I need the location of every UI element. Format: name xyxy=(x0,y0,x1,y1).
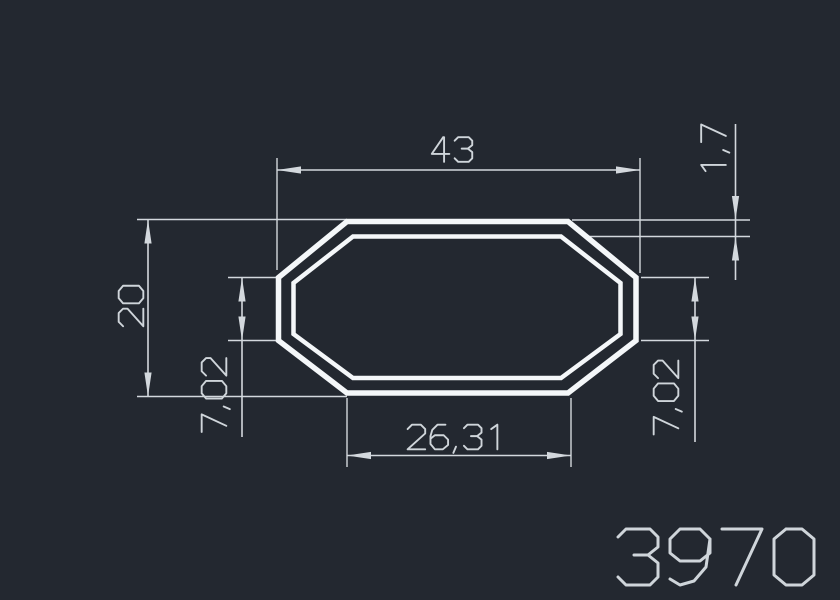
arrowhead-up xyxy=(691,278,698,302)
arrowhead-down xyxy=(238,317,245,341)
dim-bottom-width-value xyxy=(408,425,498,453)
arrowhead-left xyxy=(277,166,301,173)
arrowhead-up xyxy=(238,278,245,302)
dim-right-side-height xyxy=(641,278,709,443)
profile-outer-contour xyxy=(279,222,637,394)
dim-right-side-value xyxy=(654,361,682,435)
arrowhead-right xyxy=(616,166,640,173)
arrowhead-down xyxy=(732,196,739,220)
part-number-label xyxy=(618,529,814,585)
dim-left-side-value xyxy=(202,358,230,432)
arrowhead-left xyxy=(347,452,371,459)
arrowhead-up xyxy=(732,237,739,261)
cad-drawing-canvas xyxy=(0,0,840,600)
dim-wall-thickness xyxy=(572,124,750,280)
dim-bottom-width xyxy=(347,398,571,467)
arrowhead-up xyxy=(144,220,151,244)
dim-overall-width-value xyxy=(432,137,472,162)
dim-left-side-height xyxy=(202,278,278,438)
arrowhead-down xyxy=(144,373,151,397)
dim-wall-thickness-value xyxy=(701,124,729,171)
profile-inner-contour xyxy=(294,237,621,379)
cad-viewport xyxy=(0,0,840,600)
dim-overall-height-value xyxy=(119,286,144,326)
arrowhead-down xyxy=(691,317,698,341)
arrowhead-right xyxy=(547,452,571,459)
